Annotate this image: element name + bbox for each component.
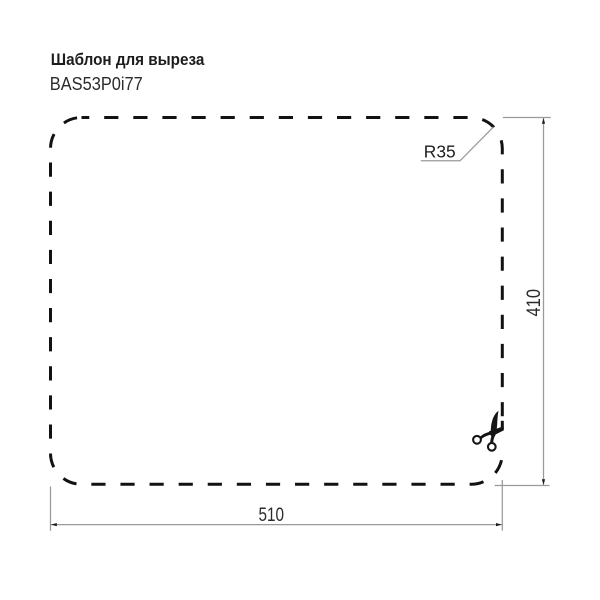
svg-text:BAS53P0i77: BAS53P0i77	[50, 73, 143, 94]
svg-text:R35: R35	[424, 142, 456, 162]
svg-text:Шаблон для выреза: Шаблон для выреза	[51, 51, 205, 69]
svg-text:410: 410	[524, 289, 545, 317]
svg-text:510: 510	[259, 505, 285, 526]
